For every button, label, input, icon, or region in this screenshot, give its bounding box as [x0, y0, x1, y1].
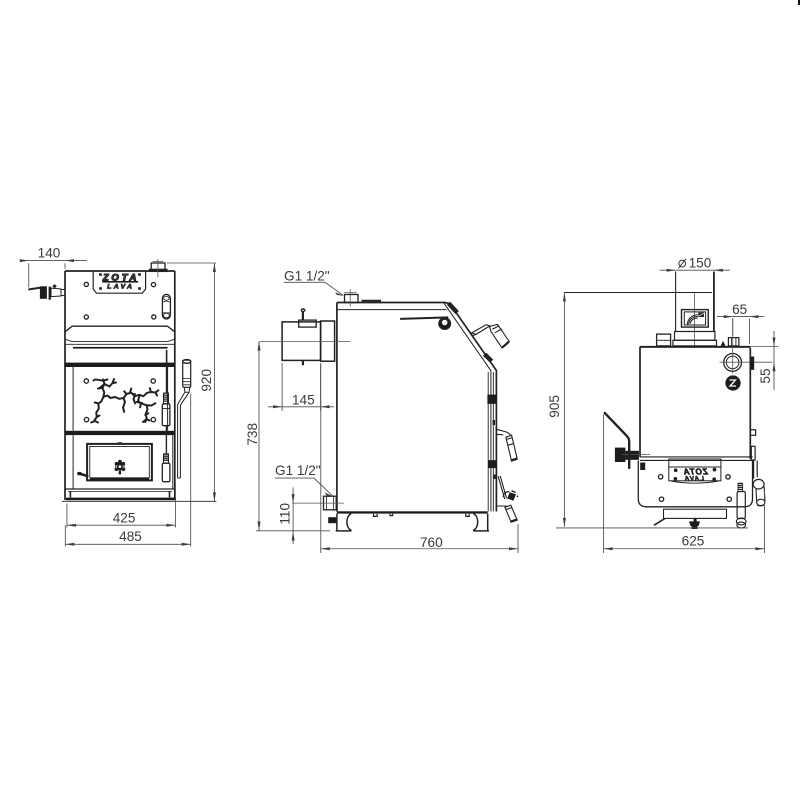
svg-text:G1 1/2": G1 1/2" [284, 268, 330, 283]
svg-text:110: 110 [278, 503, 293, 525]
svg-text:140: 140 [38, 245, 61, 260]
svg-text:150: 150 [689, 255, 712, 270]
svg-text:LAVA: LAVA [684, 476, 704, 483]
svg-text:65: 65 [732, 302, 747, 317]
svg-text:485: 485 [119, 529, 142, 544]
svg-text:145: 145 [292, 392, 315, 407]
svg-text:G1 1/2": G1 1/2" [275, 463, 321, 478]
svg-text:905: 905 [547, 395, 562, 418]
svg-text:55: 55 [758, 368, 773, 383]
svg-text:738: 738 [245, 423, 260, 446]
svg-text:425: 425 [113, 510, 136, 525]
svg-text:760: 760 [420, 535, 443, 550]
svg-text:625: 625 [682, 533, 705, 548]
svg-text:920: 920 [199, 369, 214, 392]
svg-text:LAVA: LAVA [107, 284, 134, 291]
